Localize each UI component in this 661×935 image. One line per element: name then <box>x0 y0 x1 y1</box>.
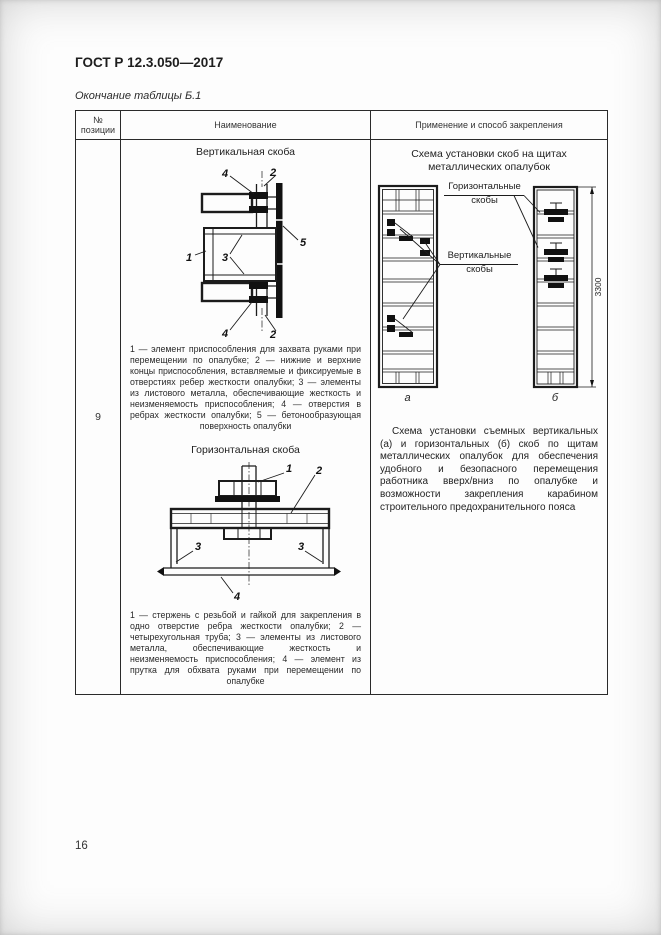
callout-2-top: 2 <box>269 167 276 179</box>
label-vertical-clamps: Вертикальные скобы <box>440 249 520 277</box>
scheme-title: Схема установки скоб на щитах металличес… <box>385 148 593 173</box>
callout-4-bottom: 4 <box>221 328 228 340</box>
callout-4-top: 4 <box>221 168 228 180</box>
horizontal-clamp-legend: 1 — стержень с резьбой и гайкой для закр… <box>130 610 361 687</box>
table-b1: № позиции Наименование Применение и спос… <box>75 110 608 695</box>
callout-3: 3 <box>222 252 228 264</box>
horizontal-clamp-title: Горизонтальная скоба <box>121 444 370 456</box>
document-page: ГОСТ Р 12.3.050—2017 Окончание таблицы Б… <box>0 0 661 935</box>
col-header-application: Применение и способ закрепления <box>371 111 607 139</box>
scheme-drawing <box>372 179 607 414</box>
scheme-figure: Горизонтальные скобы Вертикальные скобы … <box>372 179 607 414</box>
doc-number: ГОСТ Р 12.3.050—2017 <box>75 55 223 70</box>
vertical-clamp-drawing: 4 2 1 3 5 4 2 <box>121 158 371 340</box>
table-caption: Окончание таблицы Б.1 <box>75 90 201 102</box>
table-header-row: № позиции Наименование Применение и спос… <box>76 111 607 140</box>
cell-name: Вертикальная скоба <box>121 140 371 694</box>
callout-3-right: 3 <box>298 541 304 553</box>
position-number: 9 <box>95 411 101 423</box>
label-horizontal-clamps: Горизонтальные скобы <box>445 180 525 208</box>
dimension-3300: 3300 <box>593 267 605 307</box>
callout-1: 1 <box>286 463 292 475</box>
panel-a-label: а <box>383 392 433 404</box>
horizontal-clamp-drawing: 1 2 3 3 4 <box>121 456 371 606</box>
callout-2: 2 <box>315 465 322 477</box>
callout-4: 4 <box>233 591 240 603</box>
col-header-name: Наименование <box>121 111 371 139</box>
callout-2-bottom: 2 <box>269 329 276 340</box>
cell-application: Схема установки скоб на щитах металличес… <box>371 140 607 694</box>
page-number: 16 <box>75 840 88 852</box>
callout-5: 5 <box>300 237 307 249</box>
scheme-description: Схема установки съемных вертикальных (а)… <box>380 426 598 514</box>
vertical-clamp-title: Вертикальная скоба <box>121 146 370 158</box>
callout-3-left: 3 <box>195 541 201 553</box>
cell-position: 9 <box>76 140 121 694</box>
col-header-position: № позиции <box>76 111 121 139</box>
vertical-clamp-legend: 1 — элемент приспособления для захвата р… <box>130 344 361 432</box>
callout-1: 1 <box>186 252 192 264</box>
panel-b-label: б <box>534 392 577 404</box>
table-body-row: 9 Вертикальная скоба <box>76 140 607 694</box>
